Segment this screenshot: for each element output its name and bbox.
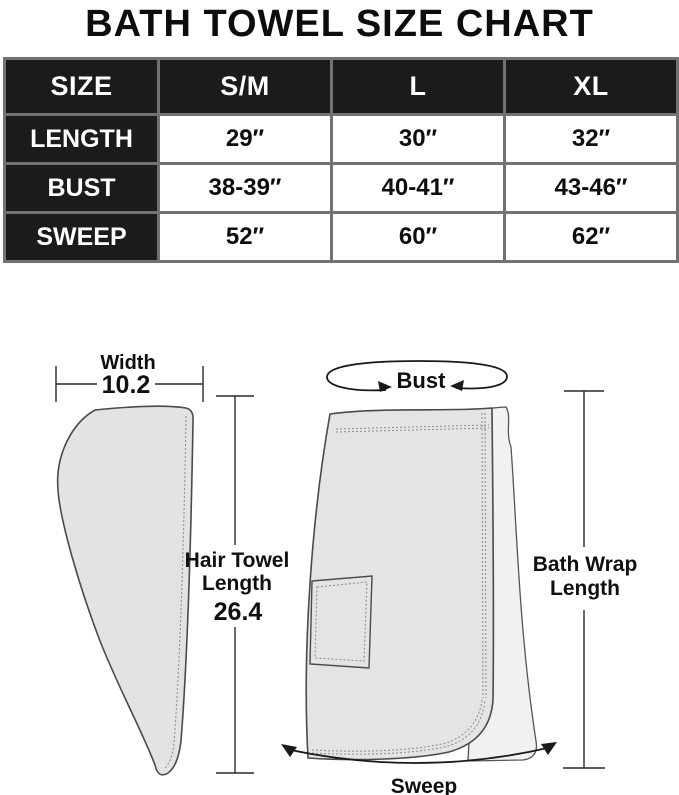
header-l: L bbox=[332, 59, 505, 115]
header-xl: XL bbox=[505, 59, 678, 115]
table-cell: 40-41″ bbox=[332, 164, 505, 213]
hair-length-value: 26.4 bbox=[214, 598, 263, 626]
table-row: SWEEP 52″ 60″ 62″ bbox=[5, 213, 678, 262]
table-cell: 38-39″ bbox=[159, 164, 332, 213]
hair-length-label-line2: Length bbox=[202, 572, 272, 595]
table-header-row: SIZE S/M L XL bbox=[5, 59, 678, 115]
row-label-bust: BUST bbox=[5, 164, 159, 213]
table-cell: 30″ bbox=[332, 115, 505, 164]
row-label-length: LENGTH bbox=[5, 115, 159, 164]
towel-diagram: Width 10.2 Hair Towel Length 26.4 Bust B… bbox=[0, 330, 679, 795]
hair-towel-shape bbox=[58, 406, 193, 775]
row-label-sweep: SWEEP bbox=[5, 213, 159, 262]
header-size: SIZE bbox=[5, 59, 159, 115]
size-chart-table: SIZE S/M L XL LENGTH 29″ 30″ 32″ BUST 38… bbox=[3, 57, 679, 263]
table-cell: 43-46″ bbox=[505, 164, 678, 213]
page-title: BATH TOWEL SIZE CHART bbox=[0, 3, 679, 46]
bath-length-label-line1: Bath Wrap bbox=[533, 553, 638, 576]
table-cell: 60″ bbox=[332, 213, 505, 262]
bath-length-label-line2: Length bbox=[550, 577, 620, 600]
bust-label: Bust bbox=[397, 368, 447, 393]
header-sm: S/M bbox=[159, 59, 332, 115]
bust-arrowhead-right bbox=[450, 380, 464, 391]
table-cell: 29″ bbox=[159, 115, 332, 164]
table-cell: 32″ bbox=[505, 115, 678, 164]
sweep-label: Sweep bbox=[391, 775, 458, 795]
table-row: LENGTH 29″ 30″ 32″ bbox=[5, 115, 678, 164]
table-cell: 52″ bbox=[159, 213, 332, 262]
table-cell: 62″ bbox=[505, 213, 678, 262]
hair-length-label-line1: Hair Towel bbox=[185, 549, 290, 572]
width-value: 10.2 bbox=[102, 371, 151, 399]
pocket-shape bbox=[310, 576, 372, 668]
table-row: BUST 38-39″ 40-41″ 43-46″ bbox=[5, 164, 678, 213]
